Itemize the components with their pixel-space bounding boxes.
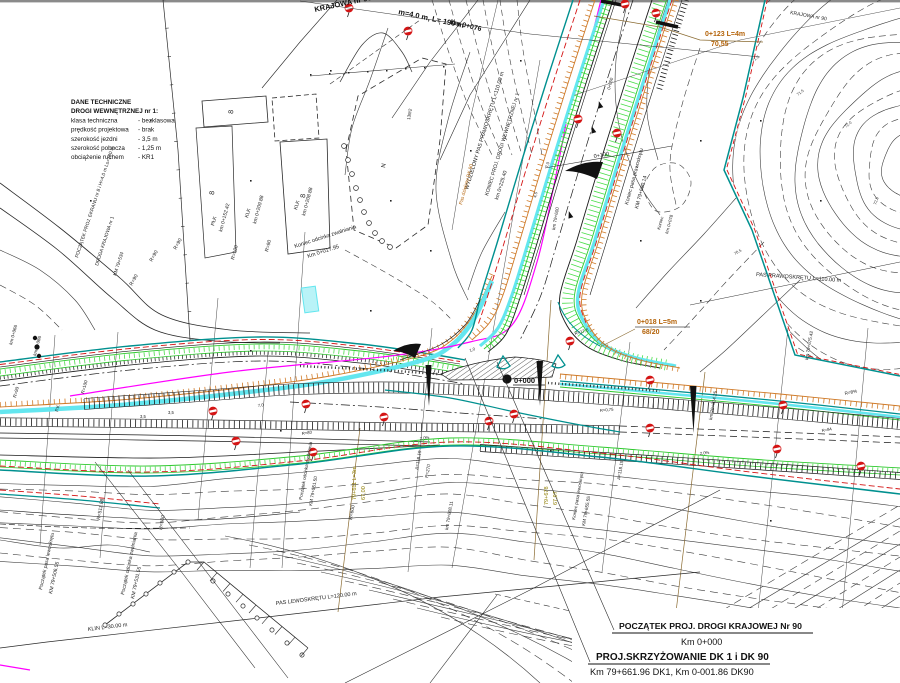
svg-text:szerokość jezdni: szerokość jezdni <box>71 136 118 143</box>
svg-text:KM 79+506.55: KM 79+506.55 <box>48 561 61 594</box>
svg-text:Pas dzielony DK 90: Pas dzielony DK 90 <box>458 163 475 205</box>
svg-text:obciążenie ruchem: obciążenie ruchem <box>71 154 124 161</box>
svg-text:km 0+078: km 0+078 <box>664 214 674 235</box>
svg-text:prędkość projektowa: prędkość projektowa <box>71 127 129 134</box>
svg-text:PAS PRAWOSKRĘTU L=110.00 m: PAS PRAWOSKRĘTU L=110.00 m <box>756 272 842 284</box>
svg-text:- 3,5 m: - 3,5 m <box>138 136 158 143</box>
svg-text:R=90: R=90 <box>12 386 20 398</box>
svg-text:67,97: 67,97 <box>553 491 559 505</box>
svg-text:km 0+076: km 0+076 <box>450 19 483 33</box>
svg-text:- 1,25 m: - 1,25 m <box>138 145 161 152</box>
svg-text:R=80: R=80 <box>301 430 312 436</box>
svg-text:R=90: R=90 <box>129 273 140 287</box>
svg-text:Km 79+661.96 DK1, Km 0-001.86: Km 79+661.96 DK1, Km 0-001.86 DK90 <box>590 667 754 677</box>
svg-text:67,00: 67,00 <box>361 486 367 500</box>
svg-text:km 0+152.42: km 0+152.42 <box>218 203 231 233</box>
svg-text:79+611 L=3m: 79+611 L=3m <box>352 466 358 500</box>
svg-text:R=90: R=90 <box>264 239 273 252</box>
svg-text:km 79+608.11: km 79+608.11 <box>444 500 454 530</box>
svg-text:km 0+208.88: km 0+208.88 <box>301 187 314 217</box>
svg-text:N: N <box>381 163 388 168</box>
svg-text:71.5: 71.5 <box>796 88 806 97</box>
svg-text:139/2: 139/2 <box>406 108 413 120</box>
svg-text:R=100: R=100 <box>230 244 240 260</box>
svg-text:Km 0+000: Km 0+000 <box>681 637 722 647</box>
svg-text:- KR1: - KR1 <box>138 154 155 161</box>
svg-text:Koniec odcinka zwalniania: Koniec odcinka zwalniania <box>294 224 358 250</box>
svg-text:0+000: 0+000 <box>514 376 535 385</box>
svg-text:PAS LEWOSKRĘTU L=120.00 m: PAS LEWOSKRĘTU L=120.00 m <box>276 591 358 607</box>
svg-text:POCZĄTEK PROJ. EKRANU nr 8 i H: POCZĄTEK PROJ. EKRANU nr 8 i H=4.0 m Ls=… <box>74 146 116 259</box>
svg-text:79+678: 79+678 <box>544 486 550 505</box>
svg-text:DROGI WEWNĘTRZNEJ nr 1:: DROGI WEWNĘTRZNEJ nr 1: <box>71 108 158 115</box>
svg-text:DROGA KRAJOWA nr 1: DROGA KRAJOWA nr 1 <box>94 215 116 266</box>
svg-text:KM 79+534: KM 79+534 <box>112 251 125 277</box>
svg-text:8: 8 <box>228 110 235 115</box>
svg-text:R=8%: R=8% <box>844 388 857 396</box>
svg-text:72.0: 72.0 <box>843 119 853 128</box>
svg-text:KRAJOWA nr 90: KRAJOWA nr 90 <box>790 10 828 22</box>
svg-text:70,55: 70,55 <box>711 41 729 48</box>
svg-text:km 0+066: km 0+066 <box>8 324 18 345</box>
svg-text:3,5: 3,5 <box>140 414 146 419</box>
svg-text:- bezklasowa: - bezklasowa <box>138 117 175 124</box>
svg-text:0+018 L=5m: 0+018 L=5m <box>637 319 677 326</box>
svg-text:0+100: 0+100 <box>593 151 609 160</box>
svg-text:R=84: R=84 <box>821 426 833 433</box>
svg-text:POCZĄTEK PROJ. DROGI KRAJOWEJ: POCZĄTEK PROJ. DROGI KRAJOWEJ Nr 90 <box>619 621 802 631</box>
svg-text:2,0%: 2,0% <box>699 450 709 456</box>
svg-text:Koniec: Koniec <box>656 215 665 230</box>
svg-text:KLIN L=30.00 m: KLIN L=30.00 m <box>88 622 129 633</box>
svg-text:0+123 L=4m: 0+123 L=4m <box>705 31 745 38</box>
svg-text:DANE TECHNICZNE: DANE TECHNICZNE <box>71 99 131 106</box>
svg-text:7,0: 7,0 <box>257 402 264 408</box>
svg-text:68/20: 68/20 <box>642 329 660 336</box>
svg-text:klasa techniczna: klasa techniczna <box>71 117 118 124</box>
svg-text:- brak: - brak <box>138 127 155 134</box>
svg-text:R=270: R=270 <box>424 463 431 478</box>
svg-text:70.5: 70.5 <box>733 247 743 256</box>
svg-text:km 79+675.42: km 79+675.42 <box>804 330 814 360</box>
svg-text:3,5: 3,5 <box>168 410 174 415</box>
svg-text:4,5: 4,5 <box>532 191 539 199</box>
svg-text:KM 79+655.55: KM 79+655.55 <box>581 495 591 526</box>
svg-text:R=90: R=90 <box>173 237 184 251</box>
svg-text:KLK: KLK <box>293 199 301 210</box>
svg-text:szerokość pobocza: szerokość pobocza <box>71 145 125 152</box>
svg-text:Km 0+017.95: Km 0+017.95 <box>307 244 340 260</box>
svg-text:km 0+209.88: km 0+209.88 <box>252 195 265 225</box>
svg-text:1,0: 1,0 <box>469 346 477 353</box>
svg-text:8: 8 <box>209 191 216 196</box>
svg-text:72.5: 72.5 <box>872 196 880 206</box>
svg-text:KLK: KLK <box>244 207 252 218</box>
svg-text:R=90: R=90 <box>149 249 160 263</box>
svg-text:PŁK: PŁK <box>210 215 218 226</box>
svg-text:R=100: R=100 <box>80 379 88 394</box>
svg-text:PROJ.SKRZYŻOWANIE DK 1 i DK 90: PROJ.SKRZYŻOWANIE DK 1 i DK 90 <box>596 650 769 663</box>
svg-text:R=0,75: R=0,75 <box>600 407 615 413</box>
svg-text:km 79+600: km 79+600 <box>551 206 560 230</box>
